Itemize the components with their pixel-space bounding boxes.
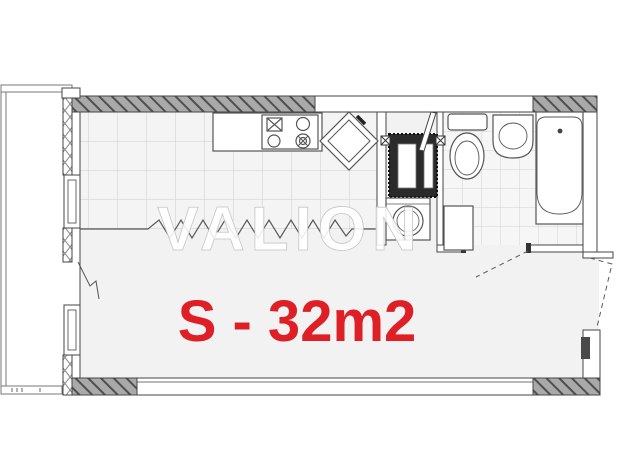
washbasin — [493, 115, 533, 158]
floor-plan: VALION S - 32m2 — [0, 0, 630, 475]
area-label: S - 32m2 — [178, 289, 417, 354]
window-left-upper — [64, 175, 80, 228]
bottom-left-wall-hatched — [72, 378, 137, 395]
left-wall-insulation-1 — [63, 98, 72, 175]
bathtub-drain — [558, 129, 563, 134]
left-wall-insulation-3 — [63, 355, 72, 395]
entrance-door-leaf — [581, 337, 590, 359]
bathroom-bottom-wall-right — [527, 245, 583, 252]
right-wall — [583, 112, 597, 253]
watermark-text: VALION — [157, 195, 423, 264]
top-wall-hatched — [72, 96, 315, 112]
left-wall-corner — [62, 88, 80, 98]
floor-plan-svg: VALION S - 32m2 — [0, 0, 630, 475]
top-right-wall-hatched — [533, 96, 597, 112]
bathtub — [536, 112, 583, 224]
balcony-bottom-wall — [1, 386, 62, 394]
toilet — [448, 114, 487, 179]
bottom-right-wall-hatched — [533, 378, 600, 395]
hall-cabinet — [444, 206, 473, 250]
window-left-lower — [64, 305, 80, 355]
balcony-top-wall — [1, 85, 72, 92]
balcony — [1, 85, 72, 394]
left-wall-insulation-2 — [63, 228, 72, 262]
top-wall-hollow — [315, 96, 533, 112]
window-bottom — [137, 378, 533, 395]
right-wall-jog — [583, 252, 613, 258]
